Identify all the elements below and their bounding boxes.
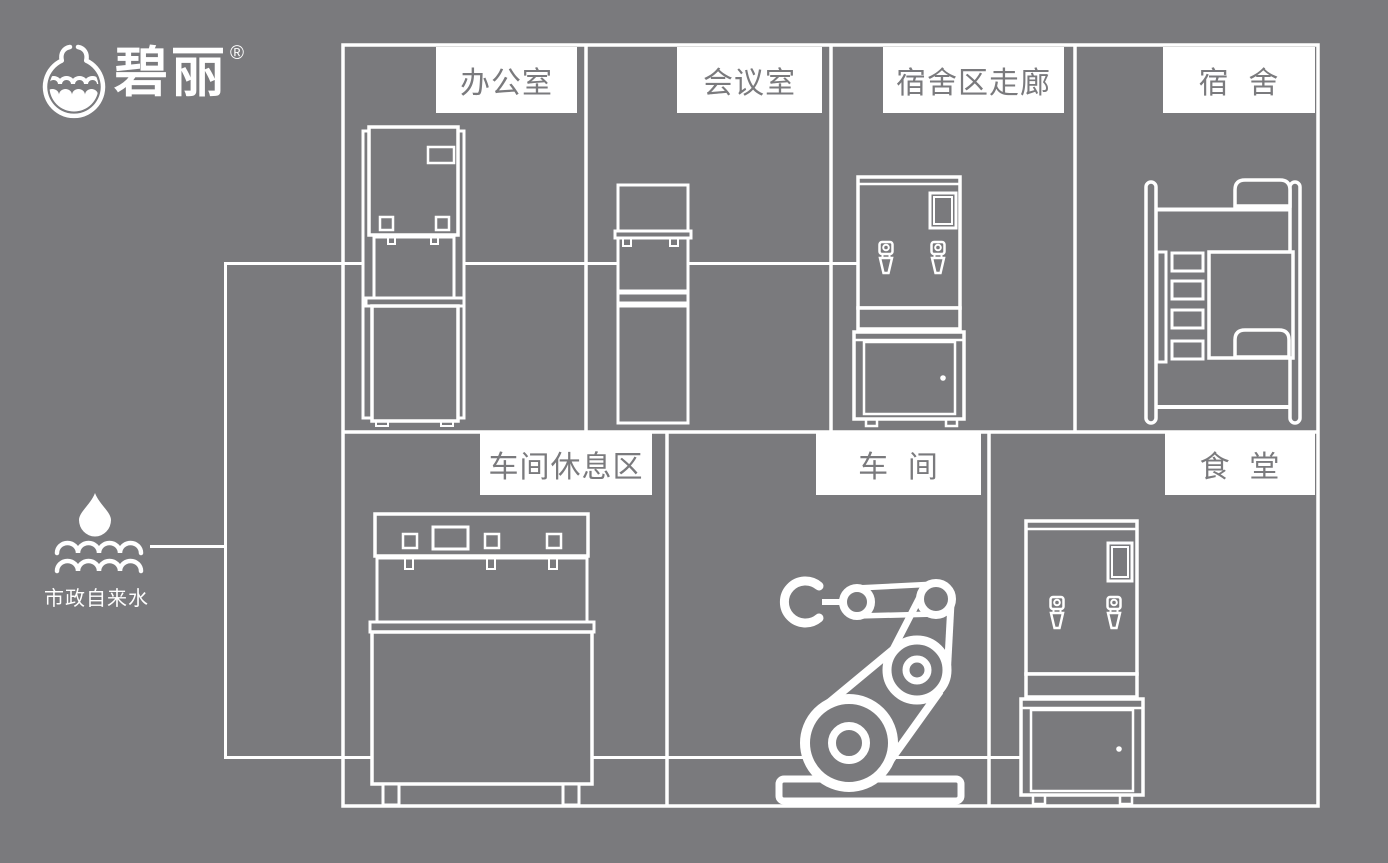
brand-logo: 碧丽® (114, 46, 242, 100)
room-label-office: 办公室 (436, 47, 577, 113)
room-label-meeting-room: 会议室 (677, 47, 822, 113)
slim-water-dispenser-icon (615, 185, 691, 423)
registered-mark: ® (230, 43, 244, 64)
room-label-dorm-corridor: 宿舍区走廊 (883, 47, 1064, 113)
bili-logo-icon (45, 47, 103, 116)
robot-arm-icon (779, 581, 961, 801)
diagram-canvas: 碧丽® 市政自来水 办公室 会议室 宿舍区走廊 宿 舍 车间休息区 车 间 食 … (0, 0, 1388, 863)
floor-standing-water-dispenser-icon (363, 127, 464, 426)
room-label-workshop: 车 间 (816, 433, 981, 495)
water-boiler-with-cabinet-icon (854, 177, 964, 426)
multi-tap-water-dispenser-icon (370, 514, 594, 805)
water-drop-over-waves-icon (57, 493, 141, 571)
room-label-canteen: 食 堂 (1165, 433, 1315, 495)
brand-name: 碧丽 (114, 43, 228, 103)
water-boiler-with-cabinet-icon (1021, 521, 1143, 804)
piping-diagram (0, 0, 1388, 863)
water-source-label: 市政自来水 (44, 582, 149, 611)
room-label-dormitory: 宿 舍 (1163, 47, 1315, 113)
bunk-bed-icon (1146, 180, 1300, 423)
room-label-workshop-rest-area: 车间休息区 (480, 433, 652, 495)
